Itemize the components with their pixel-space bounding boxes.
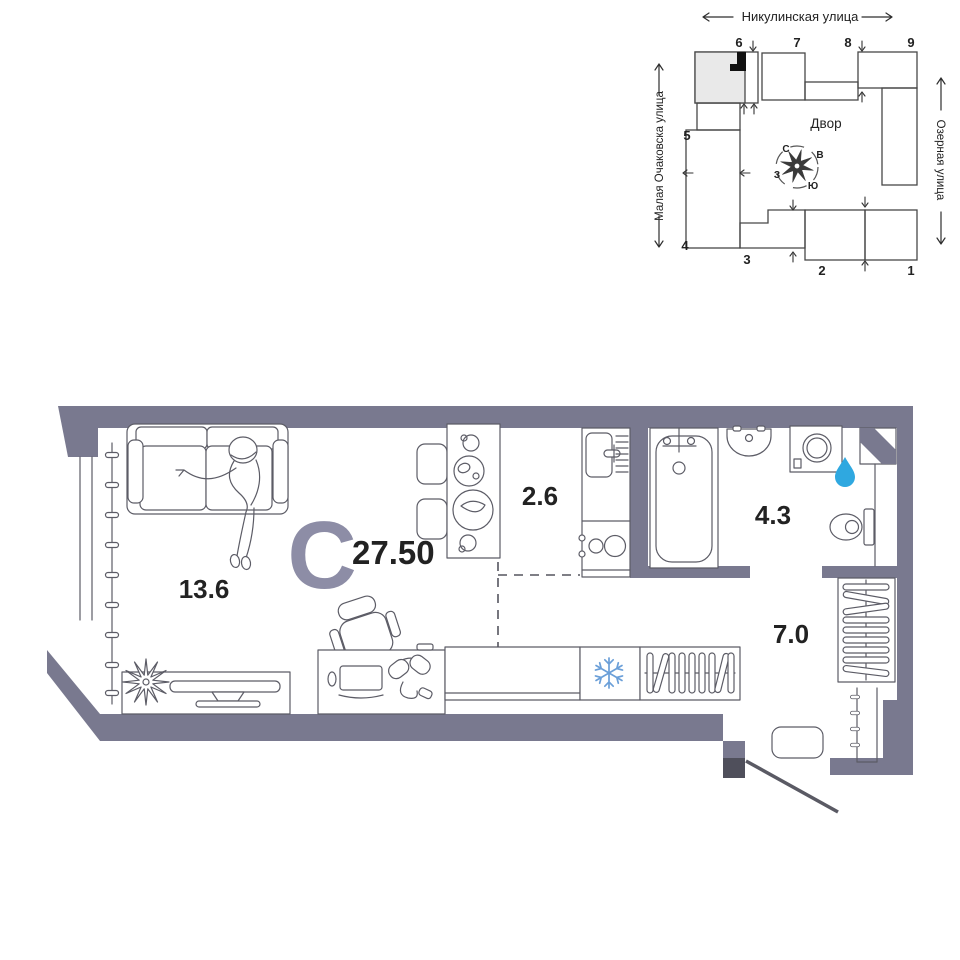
- compass-rose-icon: С В З Ю: [774, 144, 824, 192]
- site-buildings: [686, 52, 917, 260]
- fridge: [580, 647, 640, 700]
- washing-machine: [790, 426, 855, 487]
- chair: [417, 499, 447, 539]
- desk: [318, 644, 445, 714]
- building-number-8: 8: [844, 35, 851, 50]
- window: [80, 457, 92, 620]
- courtyard-label: Двор: [810, 116, 841, 131]
- building-number-7: 7: [793, 35, 800, 50]
- kitchen-counter-low: [445, 647, 580, 700]
- compass-south: Ю: [808, 181, 818, 192]
- wardrobe-entry: [838, 578, 895, 682]
- radiator: [106, 443, 119, 704]
- vent-shaft: [860, 428, 896, 464]
- kitchen-area-label: 2.6: [522, 481, 558, 511]
- living-room-area-label: 13.6: [179, 574, 230, 604]
- kitchen-zone-boundary: [498, 562, 580, 647]
- site-plan: 1 2 3 4 5 6 7 8 9 Никулинская улица: [654, 9, 946, 278]
- plan-canvas: 1 2 3 4 5 6 7 8 9 Никулинская улица: [0, 0, 960, 960]
- chair: [417, 444, 447, 484]
- doormat: [772, 727, 823, 758]
- compass-north: С: [782, 144, 789, 155]
- sofa: [127, 424, 288, 514]
- building-number-2: 2: [818, 263, 825, 278]
- tv: [170, 681, 280, 692]
- building-number-6: 6: [735, 35, 742, 50]
- kitchen-counter-sink: [579, 428, 630, 577]
- drying-rack: [616, 436, 628, 472]
- bath-sink: [727, 426, 771, 456]
- compass-east: В: [816, 150, 823, 161]
- floorplan-page: 1 2 3 4 5 6 7 8 9 Никулинская улица: [0, 0, 960, 960]
- total-area-label: 27.50: [352, 534, 435, 571]
- building-number-1: 1: [907, 263, 914, 278]
- entrance-door-leaf: [746, 761, 838, 812]
- building-number-5: 5: [683, 128, 690, 143]
- wardrobe-hall: [640, 647, 740, 700]
- street-label-right: Озерная улица: [934, 120, 946, 201]
- building-number-9: 9: [907, 35, 914, 50]
- bathtub: [650, 428, 718, 568]
- apartment-type-letter: С: [287, 502, 356, 609]
- door-jamb: [723, 758, 745, 778]
- bathroom-wall: [630, 428, 648, 570]
- street-label-top: Никулинская улица: [742, 9, 860, 24]
- building-number-3: 3: [743, 252, 750, 267]
- hallway-area-label: 7.0: [773, 619, 809, 649]
- floor-plan: С 27.50 13.6 2.6 4.3 7.0: [47, 406, 913, 812]
- building-number-4: 4: [681, 238, 689, 253]
- shoe-rack: [850, 688, 877, 762]
- street-label-left: Малая Очаковска улица: [654, 91, 666, 221]
- compass-west: З: [774, 170, 780, 181]
- bathroom-area-label: 4.3: [755, 500, 791, 530]
